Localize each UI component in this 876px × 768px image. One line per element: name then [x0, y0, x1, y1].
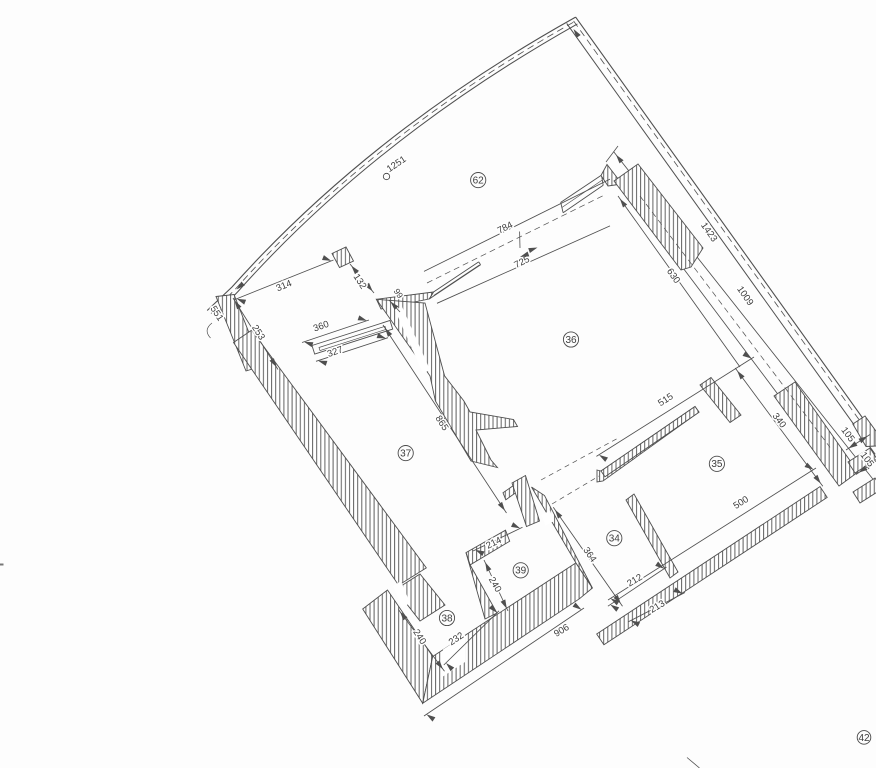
- svg-text:39: 39: [515, 566, 527, 577]
- svg-text:34: 34: [609, 534, 621, 545]
- svg-text:37: 37: [400, 449, 412, 460]
- svg-text:38: 38: [441, 613, 453, 624]
- svg-text:35: 35: [711, 459, 723, 470]
- svg-text:36: 36: [565, 335, 577, 346]
- svg-text:42: 42: [858, 733, 870, 744]
- svg-text:62: 62: [473, 176, 485, 187]
